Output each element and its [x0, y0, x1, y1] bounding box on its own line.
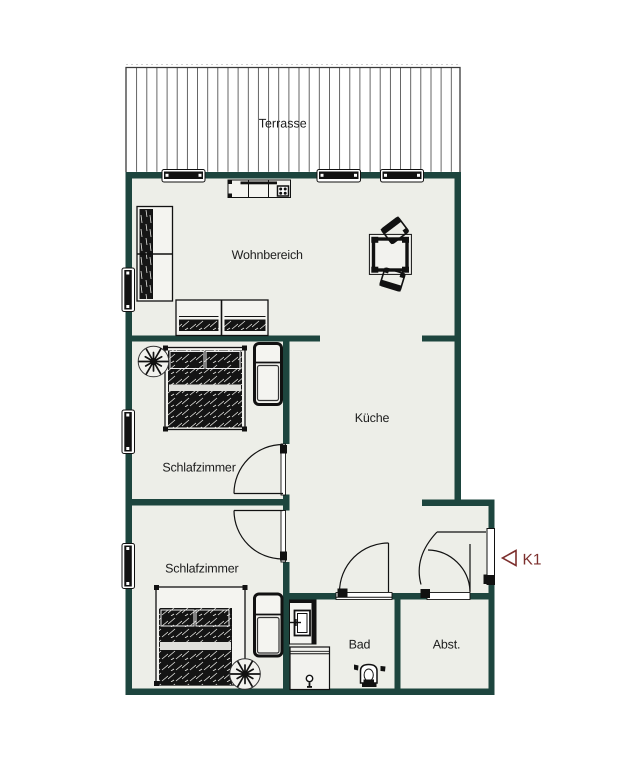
svg-text:Küche: Küche [355, 411, 390, 425]
svg-text:Bad: Bad [349, 638, 371, 652]
svg-text:Abst.: Abst. [433, 638, 461, 652]
svg-text:Terrasse: Terrasse [259, 117, 307, 131]
svg-text:Schlafzimmer: Schlafzimmer [165, 562, 238, 576]
svg-text:Wohnbereich: Wohnbereich [232, 248, 303, 262]
svg-text:K1: K1 [523, 552, 542, 569]
svg-text:Schlafzimmer: Schlafzimmer [162, 461, 235, 475]
